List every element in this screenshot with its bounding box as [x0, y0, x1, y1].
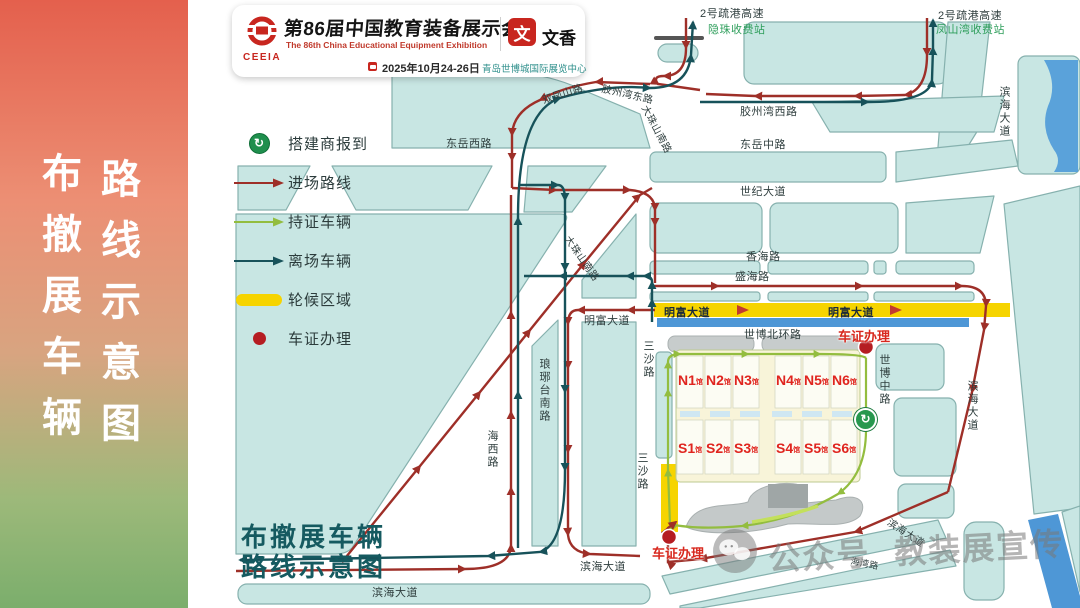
calendar-icon	[368, 62, 377, 71]
hall-label-n5: N5馆	[804, 372, 829, 388]
hall-label-n3: N3馆	[734, 372, 759, 388]
map-title: 布撤展车辆 路线示意图	[241, 523, 386, 583]
hall-label-n4: N4馆	[776, 372, 801, 388]
road-label-jiaozhou-west: 胶州湾西路	[740, 103, 798, 119]
watermark: 公众号 教装展宣传	[711, 527, 759, 575]
hall-label-s1: S1馆	[678, 440, 702, 456]
wenxiang-seal-icon: 文	[508, 18, 536, 46]
legend-row-permit: 持证车辆	[230, 202, 390, 241]
road-label-shibo-north: 世博北环路	[744, 326, 802, 342]
road-label-shenghai: 盛海路	[735, 268, 770, 284]
road-label-mingfu-west: 明富大道	[584, 312, 630, 328]
sidebar-title-col2: 路线示意图	[97, 158, 137, 463]
sidebar-banner: 布撤展车辆 路线示意图	[0, 0, 188, 608]
road-label-shibo-mid: 世博中路	[876, 354, 892, 406]
hall-label-s3: S3馆	[734, 440, 758, 456]
hall-label-s6: S6馆	[832, 440, 856, 456]
hall-label-s4: S4馆	[776, 440, 800, 456]
legend-label: 进场路线	[288, 172, 352, 193]
map-title-line1: 布撤展车辆	[241, 523, 386, 553]
legend-row-waiting: 轮候区域	[230, 280, 390, 319]
hall-label-s5: S5馆	[804, 440, 828, 456]
legend-row-checkin: ↻ 搭建商报到	[230, 124, 390, 163]
ceeia-logo-icon	[246, 14, 278, 50]
hall-label-n2: N2馆	[706, 372, 731, 388]
waiting-zone-icon	[236, 294, 282, 306]
road-label-binhai-bl: 滨海大道	[372, 584, 418, 600]
hall-label-n6: N6馆	[832, 372, 857, 388]
road-label-dongyue-mid: 东岳中路	[740, 136, 786, 152]
exhibition-venue	[668, 336, 863, 533]
legend-label: 持证车辆	[288, 211, 352, 232]
toll-label-fengshanwan: 凤山湾收费站	[936, 21, 1005, 37]
header-divider	[500, 17, 501, 51]
hall-label-n1: N1馆	[678, 372, 703, 388]
map-title-line2: 路线示意图	[241, 553, 386, 583]
permit-vehicle-arrow-icon	[230, 216, 288, 228]
road-label-xianghai: 香海路	[746, 248, 781, 264]
road-label-shiji-avenue: 世纪大道	[740, 183, 786, 199]
road-label-dongyue-west: 东岳西路	[446, 135, 492, 151]
toll-gate-bar	[654, 36, 704, 40]
watermark-account: 公众号	[767, 529, 871, 580]
sidebar-title-col1: 布撤展车辆	[38, 152, 78, 457]
pass-office-label-ne: 车证办理	[838, 326, 890, 345]
wenxiang-brand: 文香	[542, 24, 576, 49]
road-label-sansha-upper: 三沙路	[640, 340, 656, 379]
legend-row-pass: 车证办理	[230, 319, 390, 358]
map-legend: ↻ 搭建商报到 进场路线 持证车辆 离场车辆 轮候区域 车证办	[230, 124, 390, 358]
builder-checkin-icon: ↻	[854, 408, 877, 431]
route-map-page: 2号疏港高速 隐珠收费站 2号疏港高速 凤山湾收费站 滨海大道 胶州湾西路 胶州…	[0, 0, 1080, 608]
entry-route-arrow-icon	[230, 177, 288, 189]
event-venue: 青岛世博城国际展览中心	[482, 61, 587, 75]
toll-label-yinzhu: 隐珠收费站	[708, 21, 766, 37]
legend-row-entry: 进场路线	[230, 163, 390, 202]
legend-row-exit: 离场车辆	[230, 241, 390, 280]
event-title: 第86届中国教育装备展示会	[283, 14, 522, 41]
road-label-langyatai-south: 琅琊台南路	[536, 358, 552, 423]
road-label-binhai-mid: 滨海大道	[964, 380, 980, 432]
wechat-icon	[711, 527, 759, 575]
event-date: 2025年10月24-26日	[382, 60, 480, 76]
legend-label: 车证办理	[288, 328, 352, 349]
builder-checkin-icon: ↻	[249, 133, 270, 154]
legend-label: 搭建商报到	[288, 133, 368, 154]
event-subtitle: The 86th China Educational Equipment Exh…	[286, 40, 487, 50]
pass-office-label-south: 车证办理	[652, 543, 704, 562]
road-label-binhai-bottom: 滨海大道	[580, 558, 626, 574]
exit-vehicle-arrow-icon	[230, 255, 288, 267]
road-label-sansha-lower: 三沙路	[634, 452, 650, 491]
road-label-haixi: 海西路	[484, 430, 500, 469]
road-label-mingfu-bar1: 明富大道	[664, 304, 710, 320]
ceeia-logo-text: CEEIA	[243, 52, 281, 63]
event-header-card: CEEIA 第86届中国教育装备展示会 The 86th China Educa…	[232, 5, 585, 77]
legend-label: 离场车辆	[288, 250, 352, 271]
vehicle-pass-dot-icon	[253, 332, 266, 345]
road-label-binhai-ne: 滨海大道	[996, 86, 1012, 138]
legend-label: 轮候区域	[288, 289, 352, 310]
hall-label-s2: S2馆	[706, 440, 730, 456]
road-label-highway2-nw: 2号疏港高速	[700, 5, 764, 21]
road-label-mingfu-bar2: 明富大道	[828, 304, 874, 320]
watermark-name: 教装展宣传	[893, 519, 1065, 574]
